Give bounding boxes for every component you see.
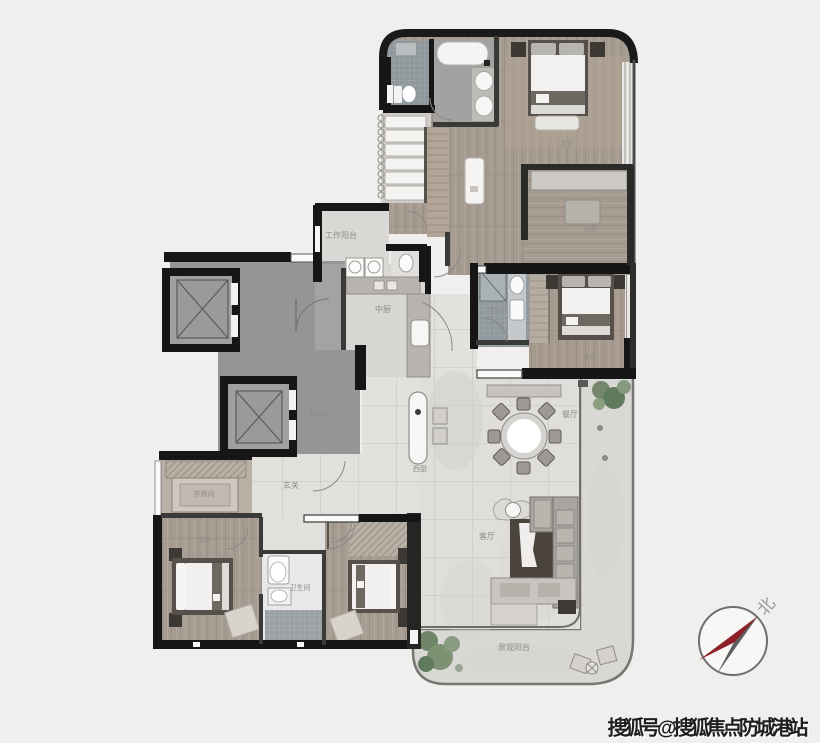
- svg-text:景观阳台: 景观阳台: [498, 642, 530, 652]
- svg-text:书房: 书房: [583, 225, 597, 234]
- svg-text:卫生间: 卫生间: [488, 307, 506, 315]
- svg-text:西厨: 西厨: [413, 465, 427, 473]
- svg-text:餐厅: 餐厅: [562, 410, 578, 419]
- svg-text:候梯厅: 候梯厅: [310, 409, 331, 418]
- svg-text:搜狐号@搜狐焦点防城港站: 搜狐号@搜狐焦点防城港站: [608, 716, 809, 740]
- svg-text:工作阳台: 工作阳台: [325, 230, 357, 240]
- svg-text:客厅: 客厅: [479, 531, 495, 541]
- svg-text:次卧: 次卧: [198, 535, 212, 544]
- svg-text:中厨: 中厨: [375, 304, 391, 314]
- svg-text:卫生间: 卫生间: [290, 583, 311, 592]
- svg-text:玄关: 玄关: [283, 480, 299, 490]
- svg-text:主卧: 主卧: [560, 139, 574, 148]
- svg-text:衣帽间: 衣帽间: [194, 489, 215, 498]
- svg-text:次卧: 次卧: [583, 353, 597, 362]
